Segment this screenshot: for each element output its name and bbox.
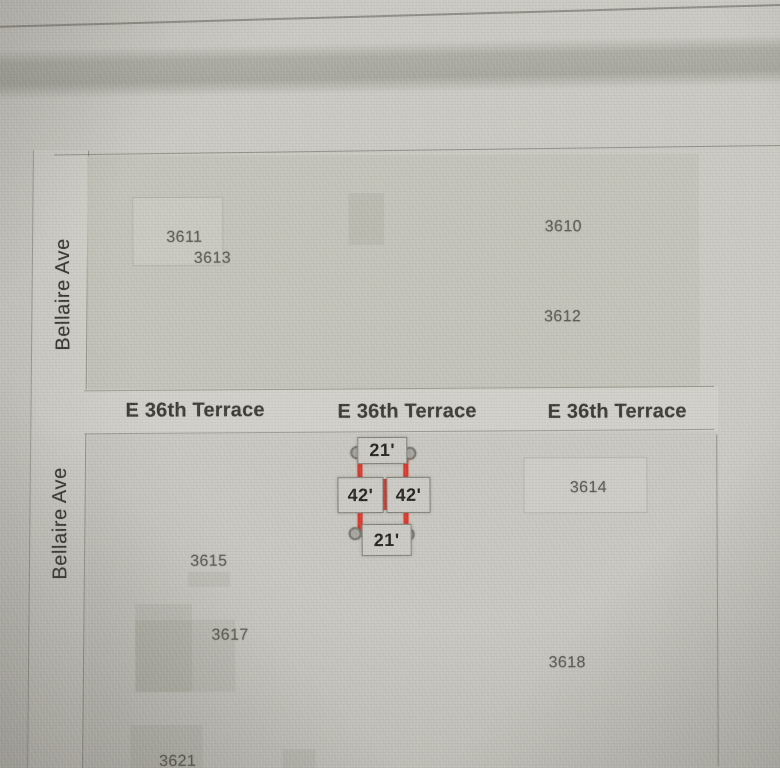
parcel-label-3615: 3615 bbox=[190, 553, 227, 571]
parcel-map[interactable]: Bellaire Ave Bellaire Ave E 36th Terrace… bbox=[0, 0, 780, 768]
parcel-label-3614: 3614 bbox=[570, 479, 607, 497]
parcel-label-3613: 3613 bbox=[194, 250, 231, 268]
block-north-of-terrace bbox=[87, 154, 700, 390]
dimension-label-bottom: 21' bbox=[362, 524, 412, 556]
parcel-label-3611: 3611 bbox=[166, 229, 202, 247]
street-label-e36th-center: E 36th Terrace bbox=[337, 400, 476, 424]
building-footprint bbox=[282, 748, 317, 768]
parcel-label-3617: 3617 bbox=[211, 627, 248, 645]
dimension-label-right: 42' bbox=[386, 477, 430, 513]
building-footprint bbox=[347, 192, 385, 246]
map-canvas[interactable]: Bellaire Ave Bellaire Ave E 36th Terrace… bbox=[0, 0, 780, 768]
street-label-e36th-left: E 36th Terrace bbox=[125, 399, 264, 423]
dimension-label-left: 42' bbox=[337, 477, 383, 513]
street-label-bellaire-upper: Bellaire Ave bbox=[52, 238, 75, 351]
street-label-bellaire-lower: Bellaire Ave bbox=[49, 467, 72, 580]
selection-handle-bottom-left[interactable] bbox=[349, 527, 362, 540]
street-label-e36th-right: E 36th Terrace bbox=[547, 400, 686, 424]
parcel-label-3621: 3621 bbox=[159, 753, 196, 768]
dimension-label-top: 21' bbox=[357, 437, 407, 464]
building-footprint bbox=[187, 571, 231, 588]
parcel-label-3618: 3618 bbox=[549, 654, 586, 672]
parcel-label-3610: 3610 bbox=[545, 218, 582, 236]
parcel-label-3612: 3612 bbox=[544, 308, 581, 326]
